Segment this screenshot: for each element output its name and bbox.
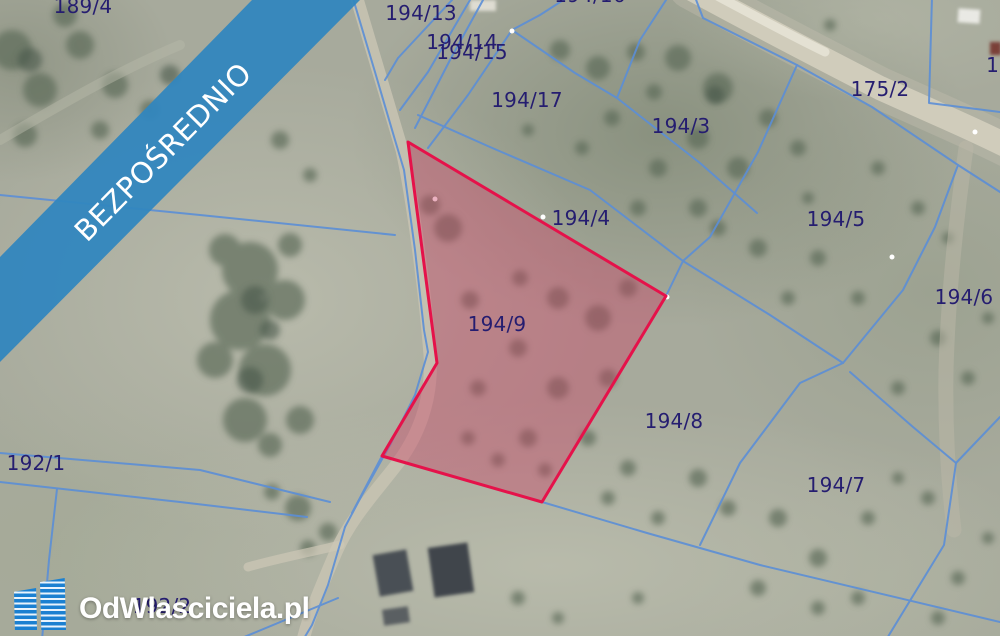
building-tower-tall <box>40 578 66 630</box>
odwlasciciela-logo: OdWlasciciela.pl <box>14 578 309 630</box>
parcel-label-194-17: 194/17 <box>491 88 563 112</box>
logo-text: OdWlasciciela.pl <box>79 594 309 630</box>
parcel-label-194-13: 194/13 <box>385 1 457 25</box>
parcel-label-194-4: 194/4 <box>552 206 611 230</box>
banner-ribbon <box>0 0 360 362</box>
parcel-label-194-8: 194/8 <box>645 409 704 433</box>
parcel-label-194-7: 194/7 <box>807 473 866 497</box>
parcel-label-194-9: 194/9 <box>468 312 527 336</box>
white-roof <box>958 8 981 24</box>
house-roof <box>428 542 475 597</box>
road-right-strip <box>946 148 966 530</box>
parcel-label-194-15: 194/15 <box>436 40 508 64</box>
direct-sale-banner: BEZPOŚREDNIO <box>0 0 360 362</box>
parcel-label-175-2: 175/2 <box>851 77 910 101</box>
parcel-label-192-1: 192/1 <box>7 451 66 475</box>
building-tower-short <box>14 588 37 630</box>
parcel-label-edge-clipped: 11 <box>986 53 1000 77</box>
parcel-label-189-4: 189/4 <box>54 0 113 18</box>
shed-roof <box>382 606 410 625</box>
parcel-label-194-3: 194/3 <box>652 114 711 138</box>
buildings-icon <box>14 578 66 630</box>
listing-map-image[interactable]: BEZPOŚREDNIO 189/4 194/13 194/14 194/15 … <box>0 0 1000 636</box>
parcel-label-194-5: 194/5 <box>807 207 866 231</box>
house-roof <box>373 549 414 596</box>
road-topright <box>690 0 1000 150</box>
parcel-label-194-6: 194/6 <box>935 285 994 309</box>
parcel-label-194-16: 194/16 <box>554 0 626 7</box>
